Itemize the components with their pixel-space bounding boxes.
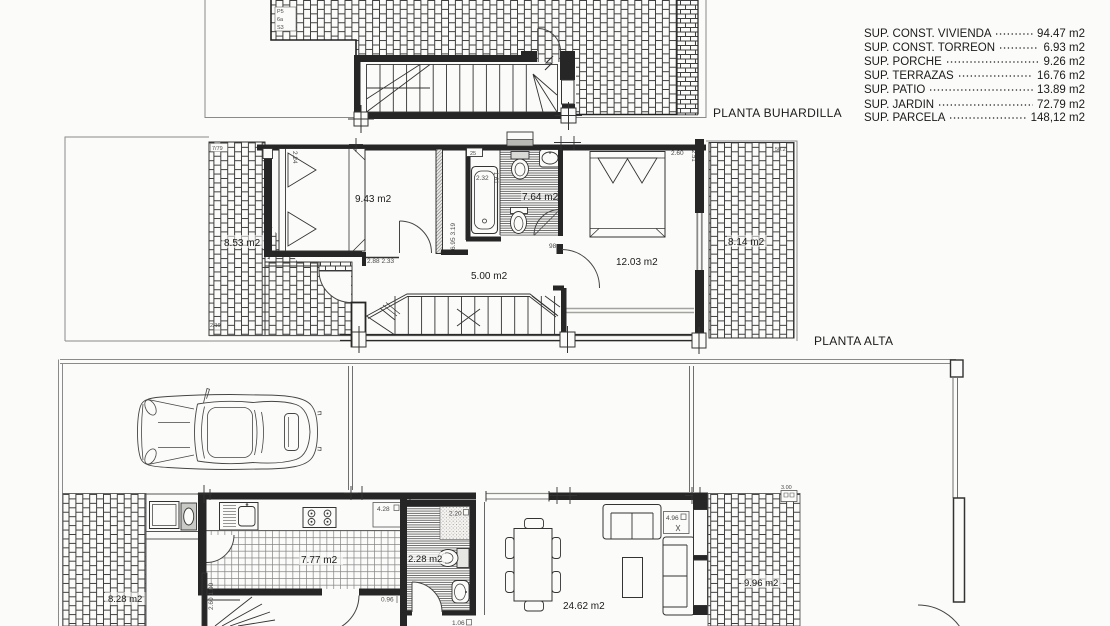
svg-text:2/19: 2/19: [210, 323, 221, 329]
svg-text:8.14 m2: 8.14 m2: [728, 237, 765, 248]
svg-text:12.03 m2: 12.03 m2: [616, 257, 658, 268]
svg-text:98: 98: [549, 243, 557, 250]
svg-text:8.28 m2: 8.28 m2: [108, 594, 142, 605]
svg-text:4.28: 4.28: [377, 506, 390, 513]
svg-text:1.61: 1.61: [492, 172, 498, 184]
svg-text:SUP. CONST. TORREON: SUP. CONST. TORREON: [864, 42, 995, 54]
svg-text:13.89 m2: 13.89 m2: [1037, 84, 1085, 96]
svg-text:2.88 2.33: 2.88 2.33: [367, 258, 394, 265]
svg-text:7.77 m2: 7.77 m2: [301, 555, 338, 566]
svg-text:0.96: 0.96: [381, 597, 394, 604]
svg-text:7/79: 7/79: [212, 146, 223, 152]
svg-text:8.53 m2: 8.53 m2: [224, 238, 261, 249]
svg-text:PLANTA BUHARDILLA: PLANTA BUHARDILLA: [713, 106, 842, 120]
svg-text:SUP. PARCELA: SUP. PARCELA: [864, 112, 946, 124]
svg-text:5.00 m2: 5.00 m2: [471, 271, 508, 282]
svg-text:6.95 3.19: 6.95 3.19: [450, 223, 457, 250]
svg-text:S3: S3: [277, 25, 284, 31]
svg-text:50.2: 50.2: [775, 147, 786, 153]
svg-text:4.96: 4.96: [666, 515, 679, 522]
svg-text:94.47 m2: 94.47 m2: [1037, 28, 1085, 40]
svg-text:7.64 m2: 7.64 m2: [522, 192, 559, 203]
svg-text:SUP. TERRAZAS: SUP. TERRAZAS: [864, 70, 954, 82]
svg-text:2.32: 2.32: [476, 175, 489, 182]
svg-text:SUP. PATIO: SUP. PATIO: [864, 84, 925, 96]
svg-text:72.79 m2: 72.79 m2: [1037, 99, 1085, 111]
svg-text:16.76 m2: 16.76 m2: [1037, 70, 1085, 82]
svg-text:9.26 m2: 9.26 m2: [1043, 56, 1085, 68]
svg-text:SUP. PORCHE: SUP. PORCHE: [864, 56, 942, 68]
svg-text:148,12 m2: 148,12 m2: [1031, 112, 1085, 124]
svg-text:2.60 1.00: 2.60 1.00: [208, 583, 215, 610]
svg-text:P5: P5: [277, 9, 284, 15]
svg-text:PLANTA ALTA: PLANTA ALTA: [814, 334, 893, 348]
svg-text:2.24: 2.24: [291, 151, 298, 164]
svg-text:2.60: 2.60: [671, 150, 684, 157]
svg-text:6a: 6a: [277, 17, 284, 23]
svg-text:6.93 m2: 6.93 m2: [1043, 42, 1085, 54]
svg-text:2.20: 2.20: [449, 511, 462, 518]
svg-text:SUP. CONST. VIVIENDA: SUP. CONST. VIVIENDA: [864, 28, 992, 40]
svg-text:1.06: 1.06: [452, 620, 465, 626]
svg-text:9.96 m2: 9.96 m2: [744, 578, 778, 589]
svg-text:24.62 m2: 24.62 m2: [563, 601, 605, 612]
svg-text:2.28 m2: 2.28 m2: [408, 554, 442, 565]
svg-text:SUP. JARDIN: SUP. JARDIN: [864, 99, 934, 111]
svg-text:9.43 m2: 9.43 m2: [355, 194, 392, 205]
svg-text:25: 25: [470, 151, 476, 157]
